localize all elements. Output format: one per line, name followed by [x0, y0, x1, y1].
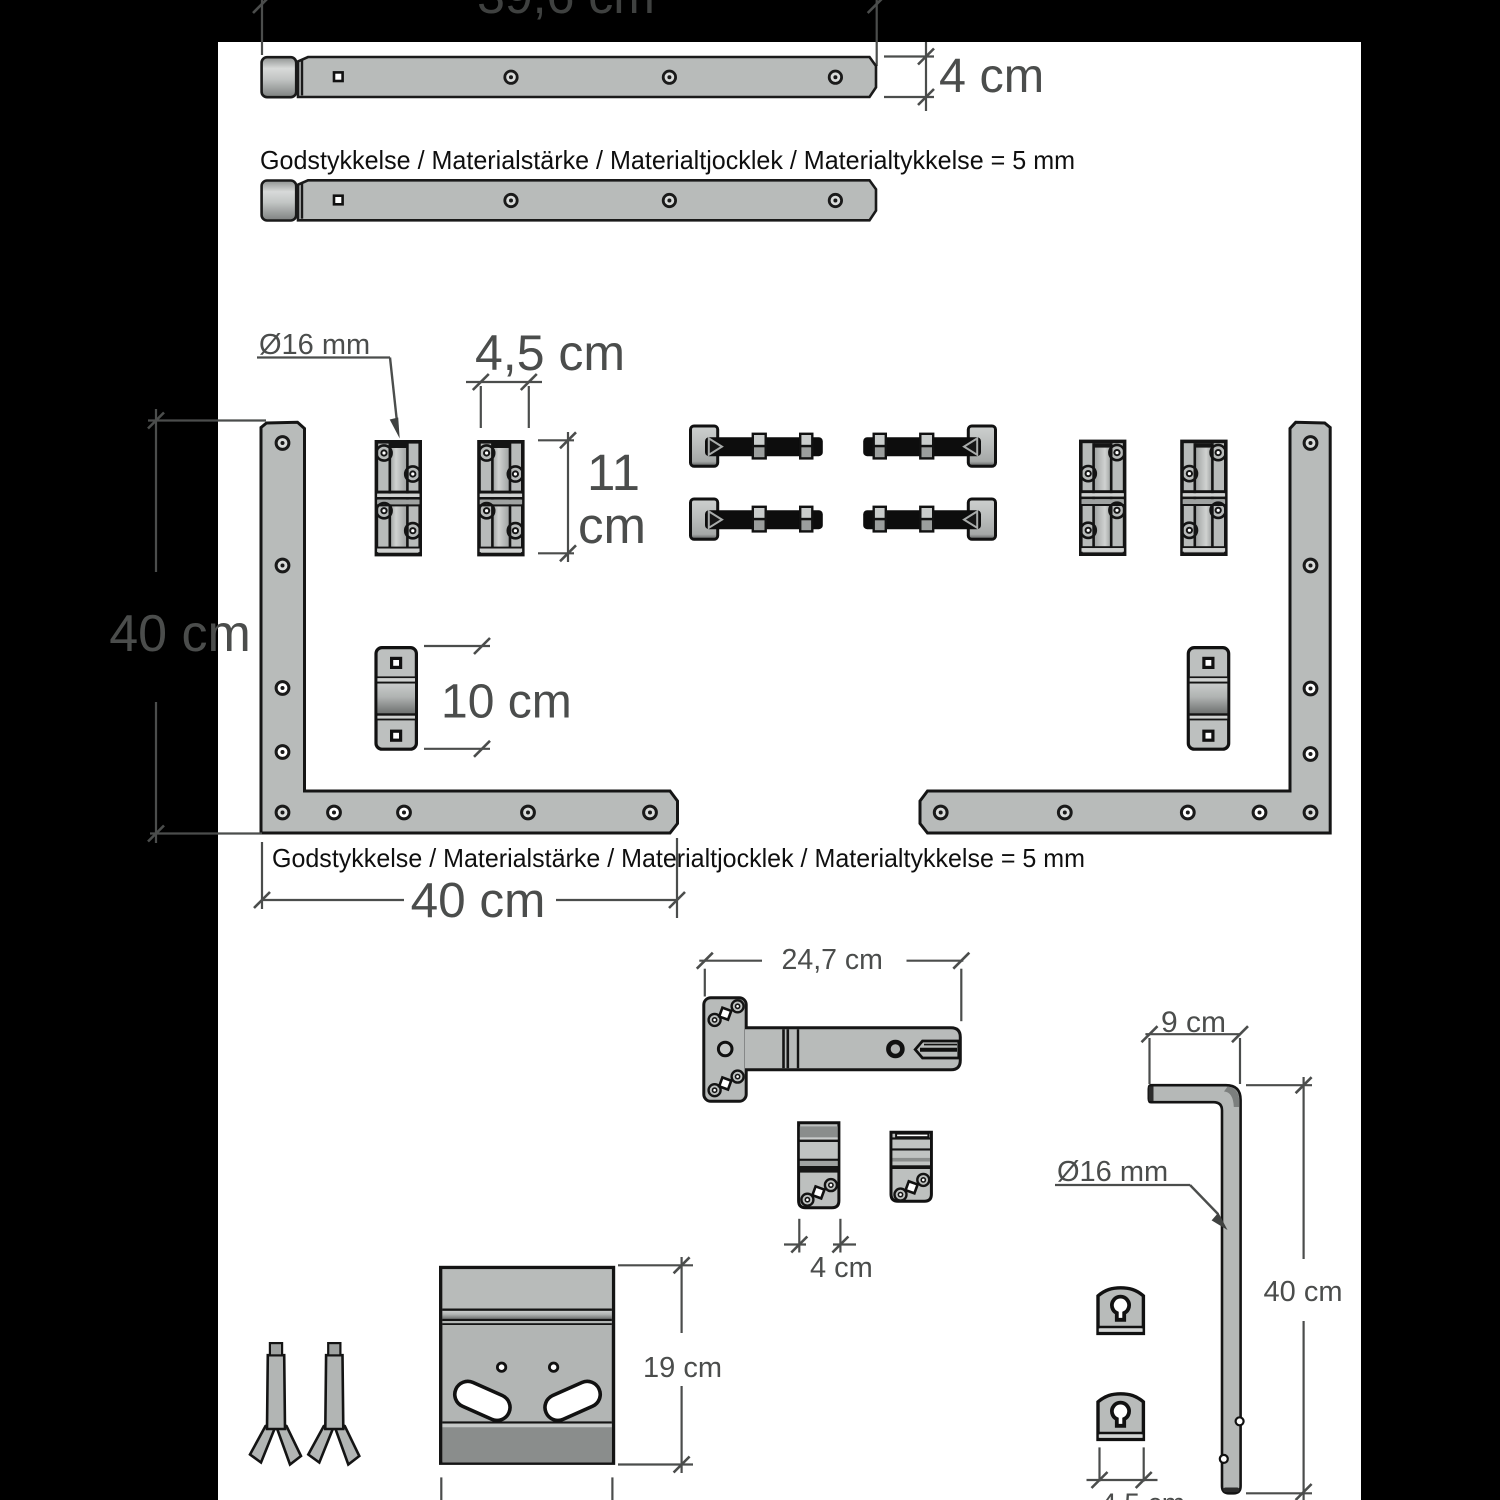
svg-text:4 cm: 4 cm: [939, 49, 1044, 103]
svg-text:Godstykkelse / Materialstärke: Godstykkelse / Materialstärke / Material…: [260, 145, 1075, 175]
svg-text:4,5 cm: 4,5 cm: [1101, 1488, 1185, 1500]
svg-text:40 cm: 40 cm: [411, 873, 546, 928]
svg-text:10 cm: 10 cm: [441, 676, 572, 729]
svg-text:39,6 cm: 39,6 cm: [477, 0, 655, 24]
svg-text:Ø16 mm: Ø16 mm: [1057, 1156, 1168, 1188]
svg-text:9 cm: 9 cm: [1161, 1006, 1226, 1039]
svg-text:40 cm: 40 cm: [109, 605, 251, 663]
svg-text:4,5 cm: 4,5 cm: [475, 325, 625, 381]
svg-text:Ø16 mm: Ø16 mm: [259, 329, 370, 361]
svg-text:11: 11: [587, 444, 640, 501]
svg-text:4 cm: 4 cm: [810, 1252, 873, 1284]
svg-text:40 cm: 40 cm: [1264, 1276, 1343, 1308]
svg-text:19 cm: 19 cm: [643, 1352, 722, 1384]
svg-text:Godstykkelse / Materialstärke: Godstykkelse / Materialstärke / Material…: [272, 843, 1085, 873]
svg-text:cm: cm: [578, 497, 646, 554]
svg-text:24,7 cm: 24,7 cm: [782, 944, 883, 976]
